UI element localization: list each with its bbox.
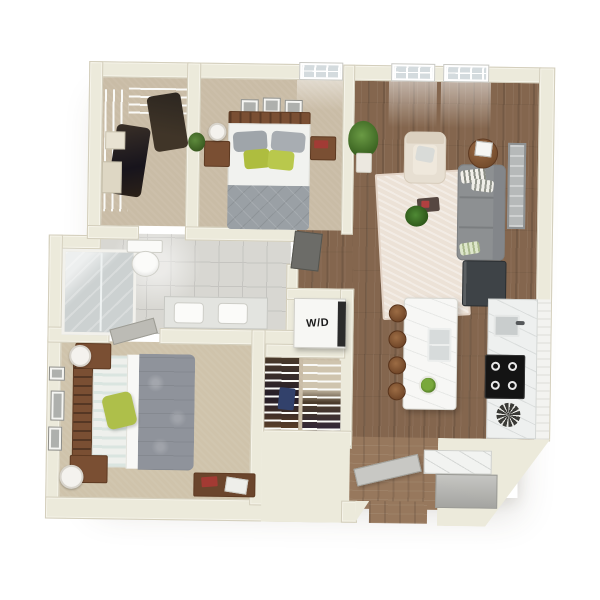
island-sink [427, 328, 451, 362]
living-plant [348, 121, 378, 157]
bedroom2-nightstand-left [204, 141, 230, 167]
bedroom2-accent-pillow [267, 149, 295, 171]
window-light [440, 82, 491, 129]
floorplan: W/D [0, 0, 600, 600]
closet-storage-box [105, 131, 125, 149]
wall-entry-jamb-angle [355, 501, 369, 523]
wall-left-upper [87, 61, 103, 239]
vanity-sink [218, 303, 248, 324]
kitchen-faucet [516, 321, 525, 325]
entry-console-top [424, 450, 492, 475]
master-duvet [138, 354, 196, 471]
bar-stool [389, 304, 407, 322]
living-plant-pot [356, 153, 372, 173]
bedroom2-window [299, 62, 343, 81]
floorplan-image: W/D [0, 0, 600, 600]
window-light [388, 81, 437, 128]
armchair-back [406, 132, 444, 144]
kitchen-backsplash [536, 299, 551, 439]
side-table-frame [474, 141, 493, 158]
bathroom-door [291, 231, 323, 272]
master-closet-item-blue [278, 387, 296, 411]
toilet-bowl [131, 251, 159, 277]
armchair-pillow [415, 145, 435, 163]
master-headboard [72, 353, 94, 469]
bedroom2-lamp-left [208, 123, 226, 141]
wall-entry-mass [261, 431, 350, 522]
closet-storage-box [101, 161, 121, 193]
sofa-pillow [471, 178, 494, 193]
washer-dryer-label: W/D [295, 305, 341, 341]
vanity-sink [174, 302, 204, 323]
stove [485, 355, 526, 400]
master-closet-wire-right [302, 360, 341, 431]
wall-under-closet [87, 225, 139, 240]
living-window-1 [391, 63, 435, 82]
window-light [297, 80, 343, 111]
bedroom2-nightstand-decor [314, 140, 328, 148]
master-wall-art [50, 391, 64, 421]
living-window-2 [443, 64, 489, 83]
master-desk-papers [224, 477, 248, 495]
bar-stool [388, 356, 406, 374]
wall-entry-jamb [341, 501, 357, 523]
bedroom2-accent-pillow [243, 148, 271, 169]
coffee-table-plant [405, 205, 428, 226]
bar-stool [388, 382, 406, 400]
master-desk-book [201, 476, 218, 487]
bedroom2-duvet [227, 185, 310, 230]
living-wall-art [507, 143, 526, 229]
entry-console-cabinet [435, 474, 497, 509]
master-wall-art [48, 426, 62, 450]
sofa-backrest [493, 166, 505, 260]
kitchen-sink [494, 315, 520, 337]
entry-door-opening [369, 501, 427, 524]
master-wall-art [49, 367, 65, 381]
